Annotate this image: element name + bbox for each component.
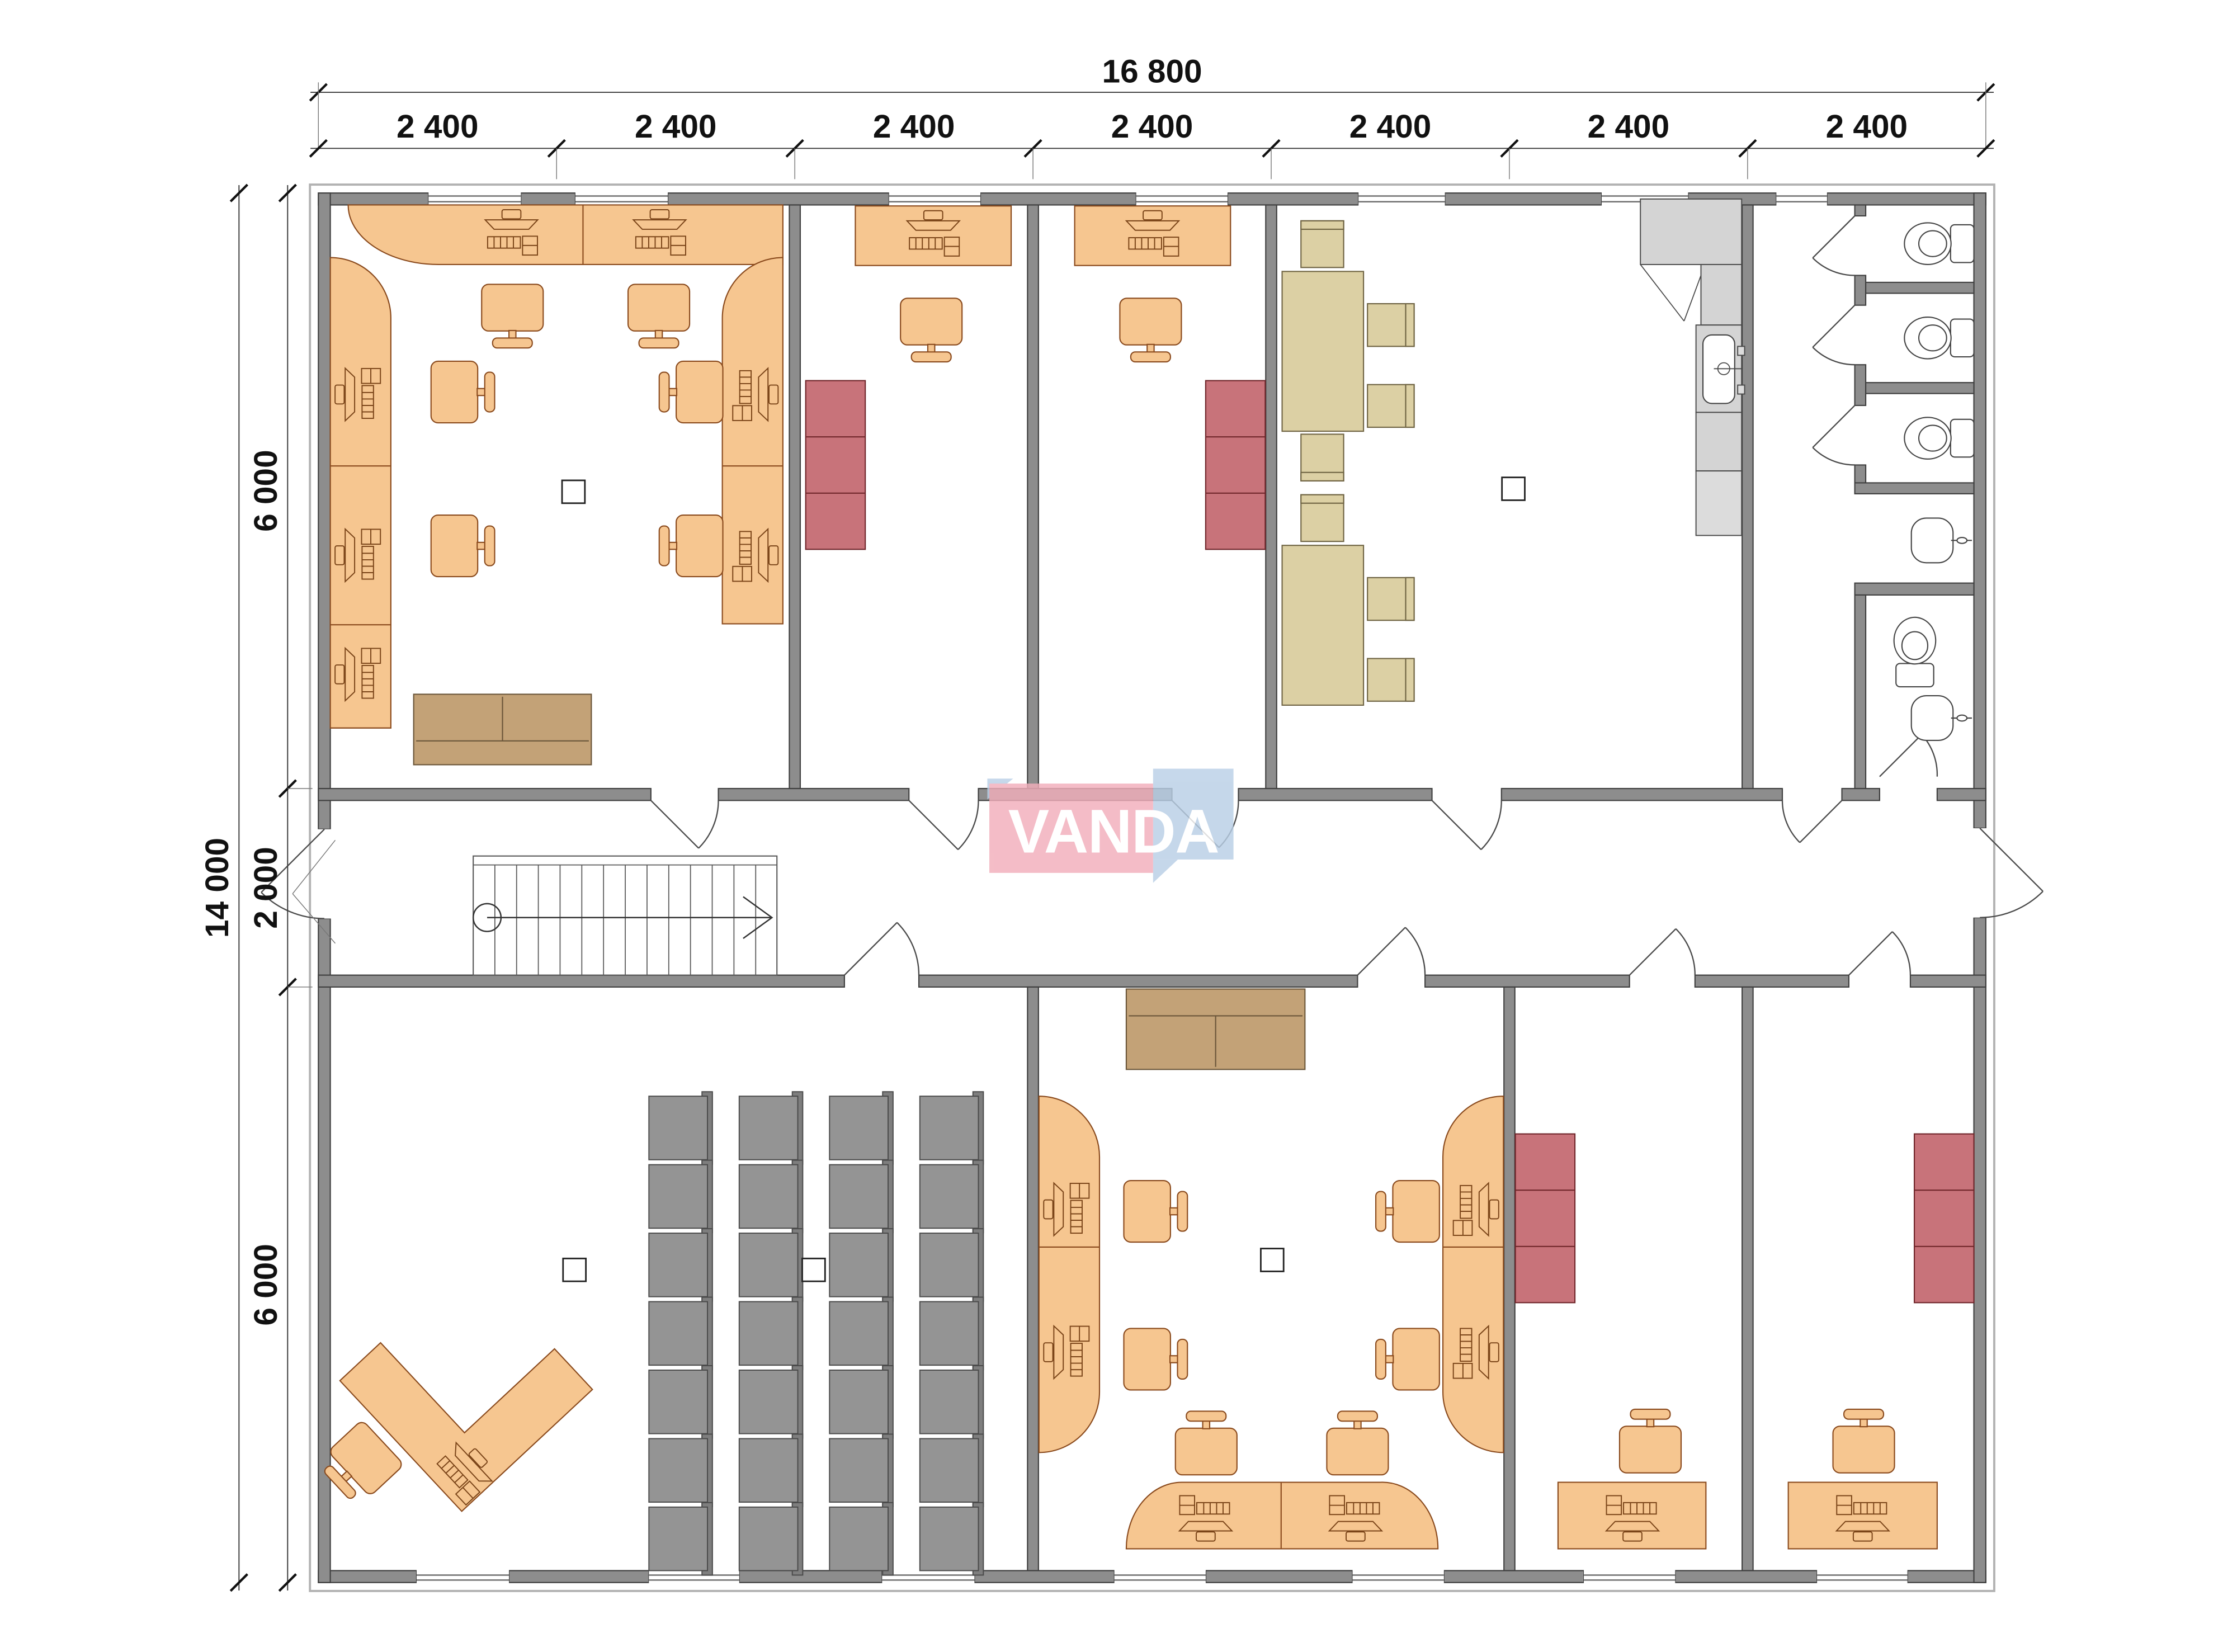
dim-left-bottom: 6 000 [248, 1244, 284, 1326]
counter [1696, 471, 1742, 535]
cabinet-stack [1914, 1134, 1974, 1303]
logo-text: VANDA [1008, 797, 1223, 866]
dim-bay: 2 400 [873, 108, 955, 145]
office-chair [1124, 1328, 1187, 1390]
office-chair [1120, 298, 1181, 362]
dining-chair [1367, 659, 1414, 701]
desk-band-right [723, 258, 783, 624]
auditorium-chair [920, 1503, 984, 1575]
office-chair [1176, 1411, 1237, 1475]
desk-band-bottom [1126, 1482, 1438, 1549]
desk-band-left [331, 258, 391, 728]
column-marker [563, 1258, 586, 1281]
window [1353, 1570, 1444, 1583]
column-marker [802, 1258, 825, 1281]
window [428, 192, 521, 206]
room-office-b [806, 206, 1011, 549]
auditorium-chair [829, 1160, 893, 1233]
dim-bay: 2 400 [1588, 108, 1670, 145]
door [1782, 800, 1842, 842]
desk-band-top [348, 205, 783, 264]
floor-plan-page: VANDA 16 800 2 400 2 400 2 400 2 400 2 4… [0, 0, 2237, 1652]
office-chair [1376, 1181, 1440, 1242]
floor-plan-drawing: VANDA 16 800 2 400 2 400 2 400 2 400 2 4… [0, 0, 2237, 1652]
column-marker [1261, 1249, 1283, 1272]
cabinet-stack [1206, 381, 1265, 550]
dining-chair [1367, 578, 1414, 620]
dim-bay: 2 400 [1826, 108, 1908, 145]
office-chair [1833, 1409, 1895, 1473]
dim-left-total: 14 000 [199, 838, 235, 938]
dining-chair [1367, 385, 1414, 427]
door [1849, 932, 1910, 975]
auditorium-chair [739, 1229, 803, 1301]
dim-bay: 2 400 [1349, 108, 1432, 145]
cabinet-stack [806, 381, 865, 550]
auditorium-chair [739, 1366, 803, 1438]
window [882, 1570, 974, 1583]
auditorium-chair [920, 1092, 984, 1164]
door [844, 923, 919, 975]
window [1115, 1570, 1206, 1583]
window [649, 1570, 739, 1583]
office-chair [482, 284, 543, 348]
room-classroom [286, 1092, 983, 1575]
auditorium-chair [829, 1366, 893, 1438]
dim-bay: 2 400 [635, 108, 717, 145]
window [575, 192, 668, 206]
toilet [1904, 417, 1974, 459]
stall-door [1813, 216, 1854, 275]
dim-left-mid: 2 000 [248, 847, 284, 929]
room-office-br2 [1788, 1134, 1974, 1549]
auditorium-chair [649, 1092, 712, 1164]
sofa [414, 694, 592, 764]
room-office-br1 [1516, 1134, 1706, 1549]
auditorium-chair [649, 1503, 712, 1575]
dim-bay: 2 400 [1111, 108, 1193, 145]
counter [1696, 412, 1742, 471]
auditorium-chair [829, 1503, 893, 1575]
door [651, 800, 719, 848]
column-marker [1502, 478, 1525, 501]
office-chair [900, 298, 962, 362]
desk-band-right [1443, 1096, 1503, 1452]
toilet [1894, 617, 1936, 687]
dining-table [1282, 271, 1364, 431]
staircase [473, 856, 777, 975]
dining-chair [1301, 221, 1343, 267]
dim-top-total: 16 800 [1102, 53, 1202, 89]
window [1776, 192, 1827, 206]
sofa [1126, 989, 1305, 1069]
auditorium-chair [739, 1160, 803, 1233]
office-chair [1376, 1328, 1440, 1390]
office-chair [628, 284, 690, 348]
presenter-desk-group [286, 1259, 592, 1562]
room-open-office-top [331, 205, 783, 764]
dining-chair [1301, 434, 1343, 480]
sink-basin [1912, 696, 1972, 740]
office-chair [1620, 1409, 1681, 1473]
vanda-logo: VANDA [987, 769, 1233, 883]
window [417, 1570, 509, 1583]
auditorium-chair [920, 1160, 984, 1233]
office-chair [1327, 1411, 1388, 1475]
bathrooms [1894, 223, 1974, 740]
dining-table [1282, 545, 1364, 705]
office-chair [659, 361, 723, 423]
auditorium-chair [649, 1229, 712, 1301]
column-marker [562, 480, 585, 503]
sink-basin [1912, 518, 1972, 563]
cabinet-stack [1516, 1134, 1575, 1303]
auditorium-chair [649, 1160, 712, 1233]
auditorium-chair [649, 1297, 712, 1370]
office-chair [431, 515, 495, 577]
desk-band-left [1039, 1096, 1099, 1452]
room-open-office-bottom [1039, 989, 1504, 1549]
auditorium-chair [920, 1366, 984, 1438]
door [1357, 927, 1425, 975]
entrance-door-right [1971, 828, 2043, 918]
stall-door [1813, 405, 1854, 465]
auditorium-chair [920, 1229, 984, 1301]
office-chair [431, 361, 495, 423]
auditorium-chair [649, 1434, 712, 1507]
auditorium-chair [829, 1092, 893, 1164]
kitchen-unit [1640, 199, 1744, 536]
room-break-kitchen [1282, 199, 1745, 705]
dim-bay: 2 400 [397, 108, 479, 145]
auditorium-chair [829, 1434, 893, 1507]
auditorium-chair [829, 1229, 893, 1301]
window [1584, 1570, 1675, 1583]
room-office-c [1075, 206, 1266, 549]
auditorium-chair [920, 1297, 984, 1370]
toilet [1904, 223, 1974, 265]
stall-door [1813, 305, 1854, 365]
auditorium-chair [920, 1434, 984, 1507]
auditorium-chair [649, 1366, 712, 1438]
auditorium-chair [739, 1092, 803, 1164]
auditorium-chair [739, 1434, 803, 1507]
office-chair [659, 515, 723, 577]
auditorium-chair [829, 1297, 893, 1370]
window [1817, 1570, 1907, 1583]
auditorium-chair [739, 1503, 803, 1575]
dining-chair [1367, 304, 1414, 346]
door [909, 800, 978, 849]
door [1432, 800, 1502, 849]
corridor [473, 856, 777, 975]
dining-chair [1301, 495, 1343, 541]
office-chair [1124, 1181, 1187, 1242]
door [1630, 929, 1695, 975]
window [889, 192, 980, 206]
window [1136, 192, 1228, 206]
toilet [1904, 317, 1974, 359]
window [1358, 192, 1445, 206]
auditorium-chair [739, 1297, 803, 1370]
dim-left-top: 6 000 [248, 450, 284, 532]
